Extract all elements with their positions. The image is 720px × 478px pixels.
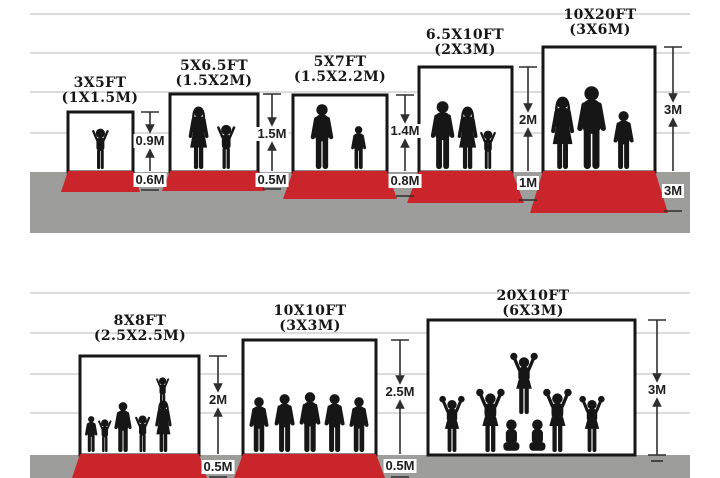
panel-title-10x20ft: 10X20FT (3X6M): [520, 8, 680, 38]
panel-title-8x8ft: 8X8FT (2.5X2.5M): [60, 314, 220, 344]
person-silhouette: [580, 86, 603, 169]
person-silhouette: [353, 126, 365, 169]
person-silhouette: [615, 111, 631, 169]
person-silhouette: [313, 104, 331, 169]
silhouettes-6-5x10ft: [419, 67, 512, 172]
silhouettes-10x20ft: [543, 47, 655, 172]
carpet-depth-label: 0.8M: [389, 174, 422, 188]
person-silhouette: [553, 97, 573, 169]
person-silhouette: [503, 419, 519, 450]
person-silhouette: [116, 402, 130, 452]
backdrop-height-label: 1.4M: [389, 124, 422, 138]
carpet-6-5x10ft: [407, 171, 524, 203]
carpet-depth-label: 1M: [517, 176, 539, 190]
person-silhouette: [93, 129, 107, 169]
person-silhouette: [476, 389, 505, 452]
backdrop-height-label: 2.5M: [384, 385, 417, 399]
person-silhouette: [218, 125, 234, 169]
carpet-5x7ft: [283, 171, 397, 199]
silhouettes-5x6-5ft: [170, 94, 258, 172]
carpet-depth-label: 3M: [662, 184, 684, 198]
person-silhouette: [433, 101, 452, 169]
size-label-ft: 10X20FT: [520, 8, 680, 23]
carpet-10x20ft: [530, 171, 668, 213]
silhouettes-20x10ft: [428, 320, 635, 455]
backdrop-height-label: 1.5M: [256, 127, 289, 141]
size-label-m: (3X6M): [520, 23, 680, 38]
carpet-depth-label: 0.5M: [256, 173, 289, 187]
size-label-ft: 10X10FT: [230, 304, 390, 319]
backdrop-height-label: 2M: [207, 393, 229, 407]
size-label-m: (1X1.5M): [20, 91, 180, 106]
carpet-depth-label: 0.5M: [202, 460, 235, 474]
size-label-m: (1.5X2.2M): [260, 70, 420, 85]
silhouettes-8x8ft: [80, 356, 199, 455]
silhouettes-10x10ft: [243, 340, 376, 455]
size-label-ft: 8X8FT: [60, 314, 220, 329]
person-silhouette: [510, 353, 538, 414]
person-silhouette: [481, 131, 495, 169]
panel-title-10x10ft: 10X10FT (3X3M): [230, 304, 390, 334]
person-silhouette: [326, 394, 342, 452]
silhouettes-5x7ft: [293, 95, 387, 172]
backdrop-height-label: 2M: [517, 113, 539, 127]
person-silhouette: [459, 107, 476, 169]
person-silhouette: [86, 416, 96, 452]
silhouettes-3x5ft: [68, 112, 133, 172]
person-silhouette: [276, 394, 292, 452]
person-silhouette: [99, 419, 111, 452]
size-label-m: (6X3M): [453, 304, 613, 319]
carpet-3x5ft: [61, 171, 140, 192]
person-silhouette: [439, 396, 464, 452]
panel-title-20x10ft: 20X10FT (6X3M): [453, 289, 613, 319]
size-comparison-diagram: 3X5FT (1X1.5M) 5X6.5FT (1.5X2M) 5X7FT (1…: [0, 0, 720, 478]
size-label-m: (2X3M): [385, 43, 545, 58]
person-silhouette: [543, 389, 572, 452]
person-silhouette: [136, 416, 149, 452]
carpet-5x6-5ft: [162, 171, 265, 191]
size-label-m: (3X3M): [230, 319, 390, 334]
person-silhouette: [302, 392, 319, 452]
carpet-8x8ft: [72, 454, 207, 478]
backdrop-height-label: 3M: [646, 383, 668, 397]
person-silhouette: [251, 397, 266, 452]
person-silhouette: [351, 397, 366, 452]
carpet-depth-label: 0.6M: [134, 173, 167, 187]
size-label-ft: 20X10FT: [453, 289, 613, 304]
carpet-10x10ft: [234, 454, 385, 478]
backdrop-height-label: 3M: [662, 103, 684, 117]
panel-title-5x7ft: 5X7FT (1.5X2.2M): [260, 55, 420, 85]
person-silhouette: [190, 107, 207, 169]
person-silhouette: [579, 396, 604, 452]
backdrop-height-label: 0.9M: [134, 134, 167, 148]
carpet-depth-label: 0.5M: [384, 459, 417, 473]
size-label-m: (2.5X2.5M): [60, 329, 220, 344]
person-silhouette: [529, 419, 545, 450]
